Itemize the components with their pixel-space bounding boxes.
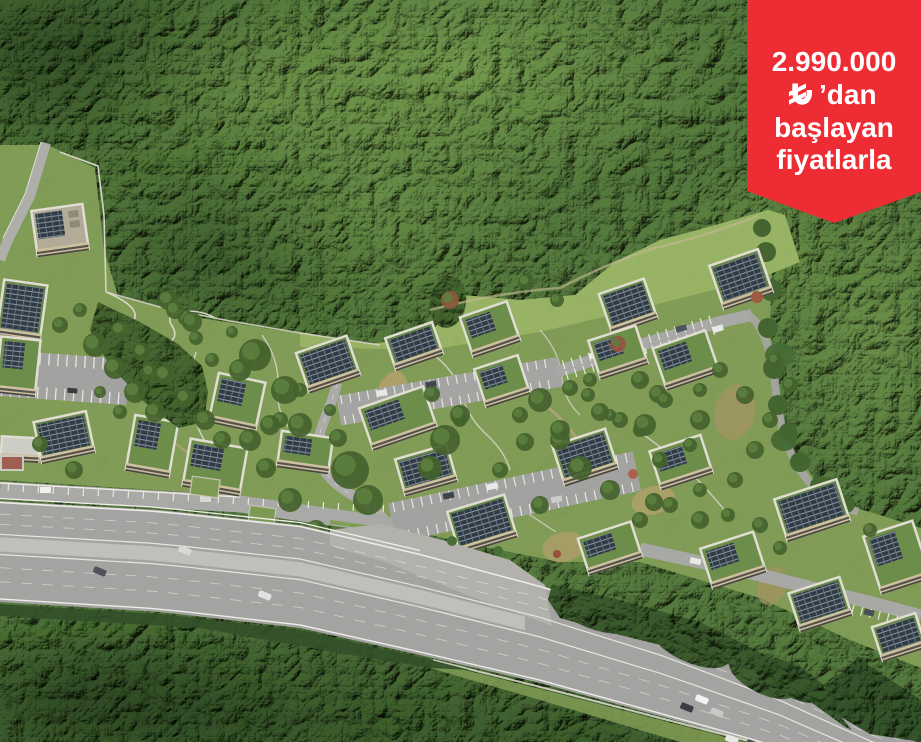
svg-text:2.990.000: 2.990.000 (772, 46, 897, 77)
svg-text:fiyatlarla: fiyatlarla (776, 144, 892, 175)
svg-text:başlayan: başlayan (774, 112, 894, 143)
svg-text:’dan: ’dan (819, 79, 877, 110)
